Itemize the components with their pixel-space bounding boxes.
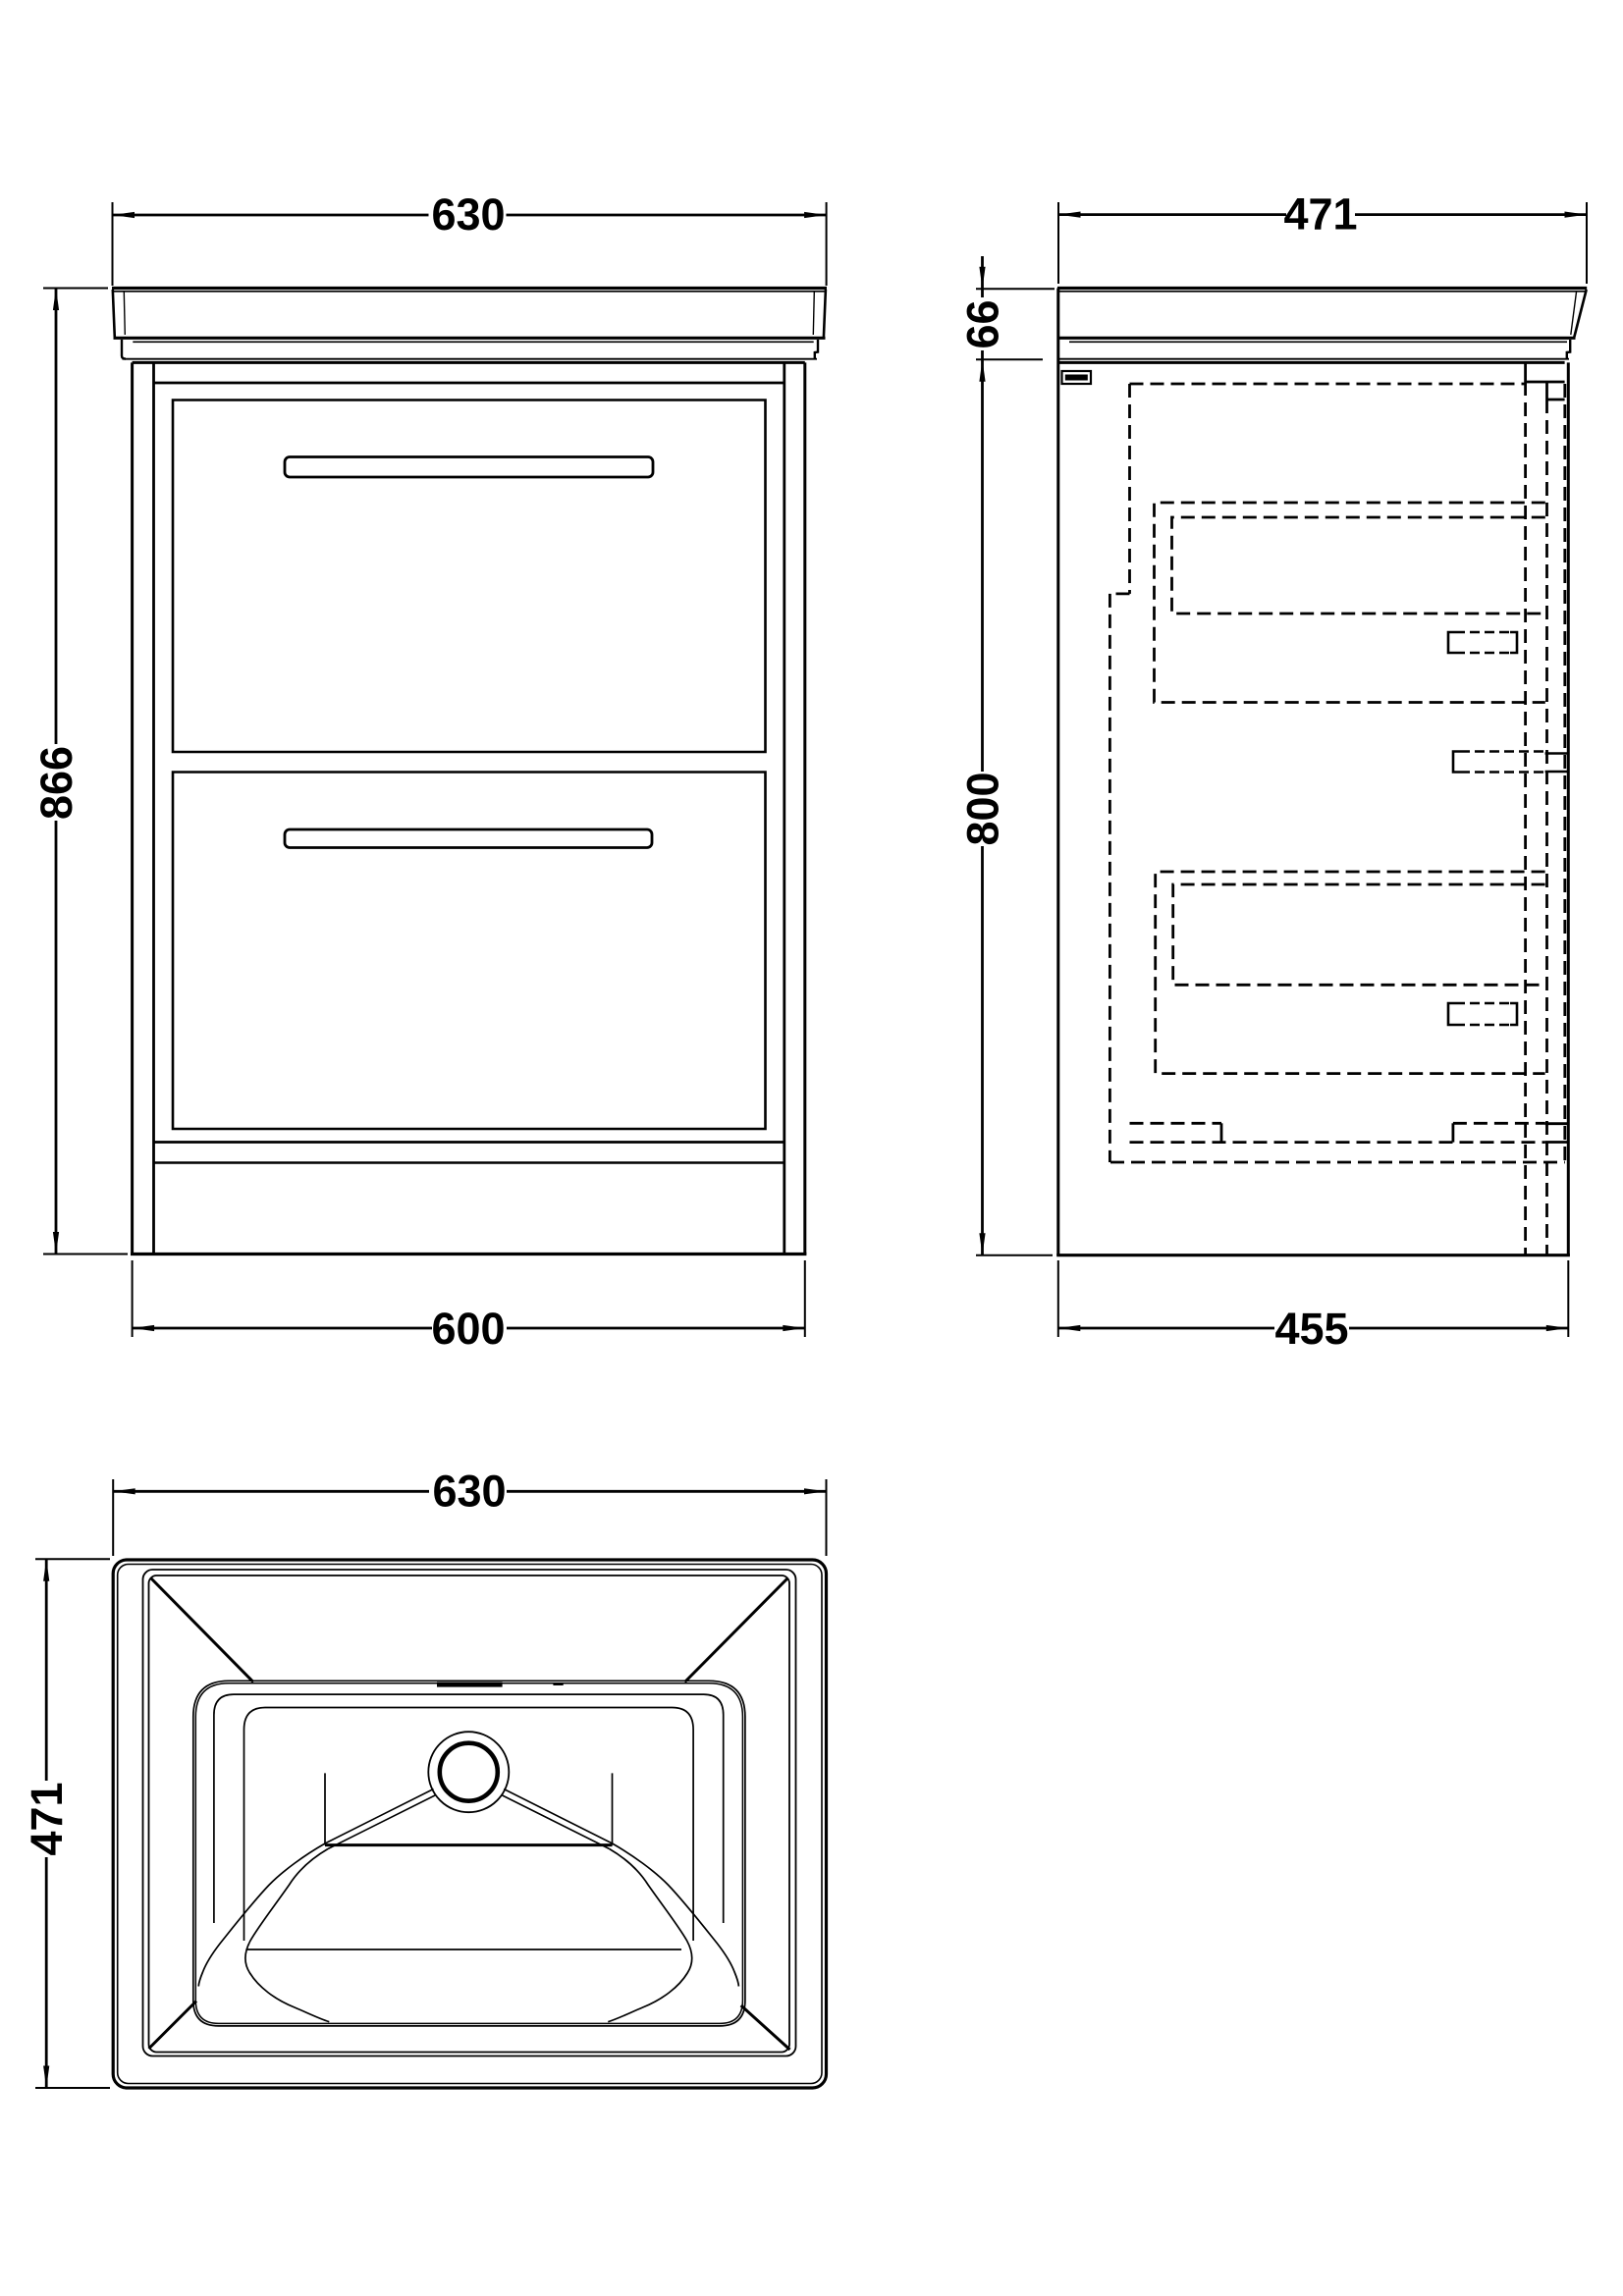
- svg-text:600: 600: [431, 1304, 505, 1354]
- svg-text:866: 866: [31, 746, 81, 820]
- svg-text:630: 630: [432, 1466, 506, 1516]
- svg-text:455: 455: [1274, 1304, 1348, 1354]
- svg-text:66: 66: [958, 299, 1008, 348]
- svg-text:630: 630: [431, 189, 505, 240]
- svg-text:800: 800: [958, 772, 1008, 845]
- svg-text:471: 471: [22, 1782, 72, 1855]
- svg-text:471: 471: [1283, 189, 1357, 240]
